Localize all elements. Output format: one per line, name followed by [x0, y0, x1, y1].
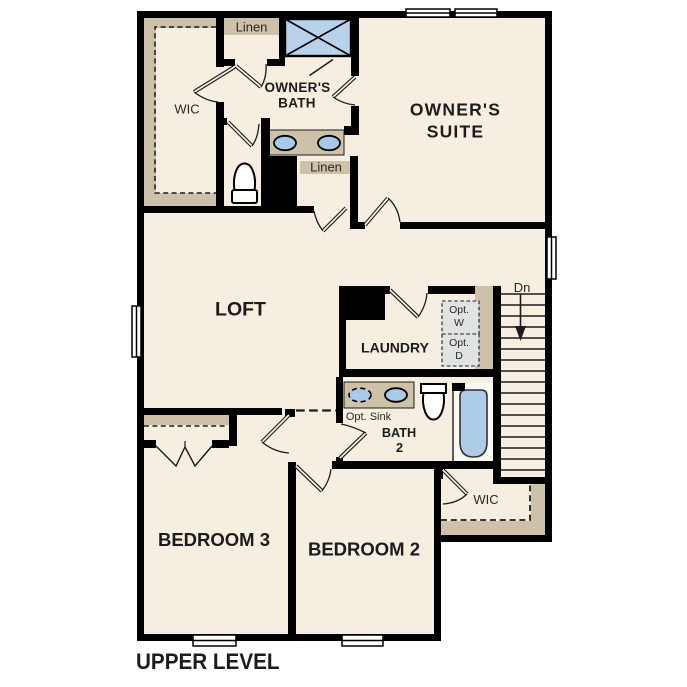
svg-text:Linen: Linen — [310, 160, 342, 175]
svg-text:BATH: BATH — [382, 426, 416, 440]
svg-text:BEDROOM 2: BEDROOM 2 — [308, 539, 420, 560]
svg-text:Opt. Sink: Opt. Sink — [346, 411, 392, 423]
svg-text:WIC: WIC — [174, 102, 199, 117]
svg-text:D: D — [455, 350, 463, 362]
svg-text:OWNER'S: OWNER'S — [410, 100, 501, 120]
svg-text:UPPER LEVEL: UPPER LEVEL — [136, 649, 280, 674]
svg-text:LAUNDRY: LAUNDRY — [361, 340, 430, 356]
svg-text:OWNER'S: OWNER'S — [264, 80, 330, 95]
svg-text:Linen: Linen — [236, 20, 268, 35]
svg-text:Opt.: Opt. — [449, 304, 469, 316]
svg-text:BATH: BATH — [278, 96, 316, 111]
svg-text:WIC: WIC — [473, 492, 498, 507]
svg-text:W: W — [454, 317, 464, 329]
svg-text:2: 2 — [396, 441, 403, 455]
svg-text:Opt.: Opt. — [449, 337, 469, 349]
svg-text:LOFT: LOFT — [215, 299, 266, 321]
svg-text:SUITE: SUITE — [427, 122, 485, 142]
svg-text:Dn: Dn — [514, 280, 531, 295]
svg-text:BEDROOM 3: BEDROOM 3 — [158, 529, 270, 550]
